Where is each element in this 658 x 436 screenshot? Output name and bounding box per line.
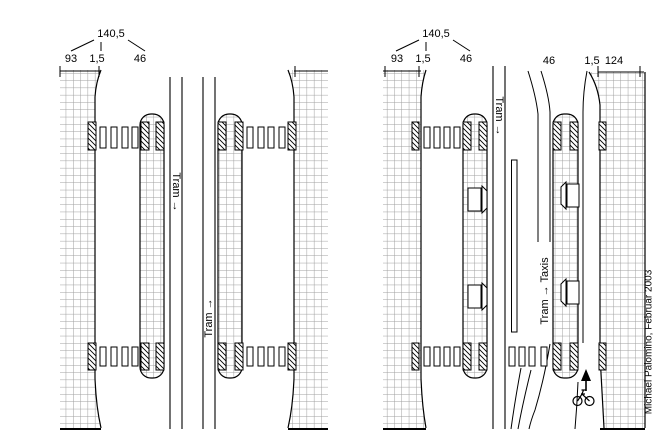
dimension-part-label: 1,5 — [584, 55, 599, 67]
sidewalk-left — [383, 70, 426, 428]
dimension-part-label: 1,5 — [415, 53, 430, 65]
tram-platform — [553, 114, 578, 378]
tram-taxi-lane-label: Tram → Taxis — [539, 257, 551, 325]
tram-platform — [218, 114, 242, 378]
author-signature: Michael Palomino, Februar 2003 — [644, 269, 655, 414]
tram-down-lane-label: Tram → — [170, 172, 182, 211]
street-plan-canvas: 140,5 93 1,5 46 — [0, 0, 658, 431]
dimension-total-label: 140,5 — [97, 28, 125, 40]
dimension-part-label: 46 — [134, 53, 146, 65]
dimension-part-label: 124 — [605, 55, 623, 67]
tram-up-lane-label: Tram → — [203, 298, 215, 337]
dimension-total-label: 140,5 — [422, 28, 450, 40]
tram-platform — [140, 114, 164, 378]
shelter-icon — [561, 182, 579, 209]
shelter-icon — [468, 186, 487, 213]
tram-platform — [463, 114, 487, 378]
median-strip — [512, 160, 518, 332]
dimension-part-label: 1,5 — [89, 53, 104, 65]
dimension-part-label: 93 — [391, 53, 403, 65]
dimension-part-label: 93 — [65, 53, 77, 65]
dimension-part-label: 46 — [460, 53, 472, 65]
shelter-icon — [468, 283, 487, 310]
tram-down-lane-label: Tram → — [493, 96, 505, 135]
shelter-icon — [561, 279, 579, 306]
dimension-part-label: 46 — [543, 55, 555, 67]
diagram-root: 140,5 93 1,5 46 — [0, 0, 658, 436]
